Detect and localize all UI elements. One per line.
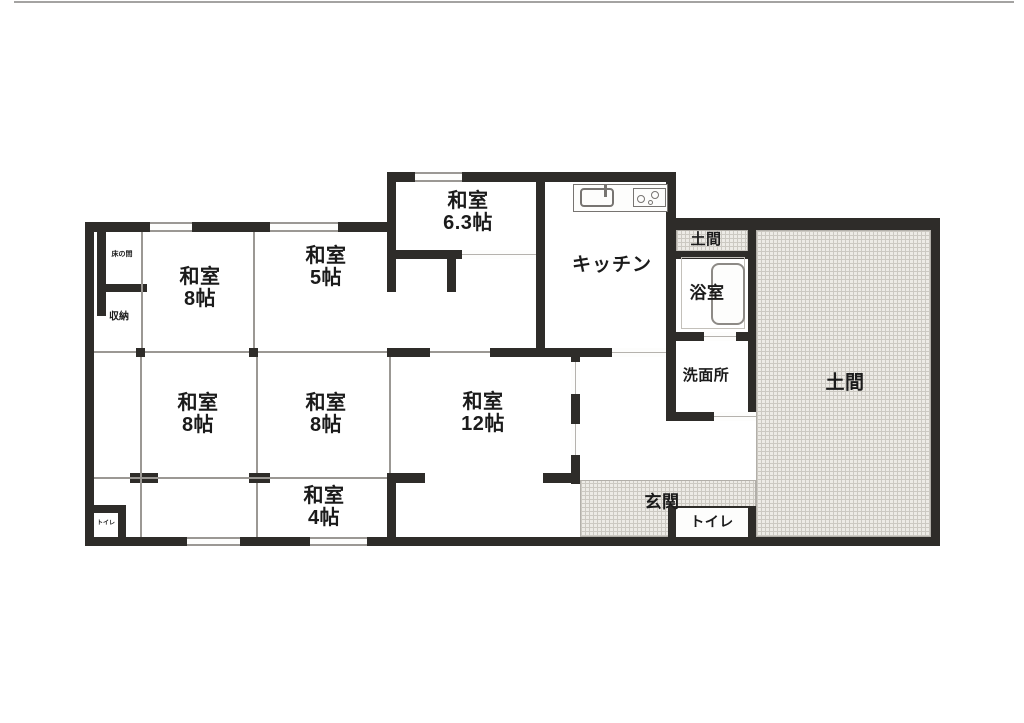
room-size: 8帖: [180, 288, 221, 310]
room-name: 和室: [448, 190, 489, 212]
room-size: 6.3帖: [443, 212, 493, 234]
stove-burner-circle: [651, 191, 659, 199]
partition-line: [389, 357, 391, 473]
partition-line: [141, 232, 143, 348]
wall-segment: [748, 230, 756, 420]
room-name: 和室: [306, 245, 347, 267]
door-marker: [612, 348, 666, 357]
wall-segment: [85, 537, 187, 546]
room-size: 5帖: [306, 267, 347, 289]
wall-segment: [85, 222, 150, 232]
room-label-doma-large: 土間: [825, 374, 864, 395]
room-label-doma-small: 土間: [690, 232, 721, 249]
faucet-icon: [604, 185, 607, 197]
wall-segment: [118, 505, 126, 546]
floor-plan: 和室 8帖 和室 5帖 和室 6.3帖 キッチン 土間 浴室 洗面所 土間 和室…: [0, 0, 1024, 723]
room-label-washitsu-mid-left: 和室 8帖: [178, 392, 219, 436]
wall-segment: [571, 394, 580, 424]
room-label-toilet-corner: トイレ: [97, 521, 115, 528]
wall-segment: [387, 250, 462, 259]
wall-segment: [666, 222, 676, 341]
partition-line: [256, 357, 258, 473]
wall-segment: [536, 172, 545, 357]
room-size: 4帖: [304, 507, 345, 529]
wall-segment: [192, 222, 270, 232]
room-label-kitchen: キッチン: [572, 256, 652, 277]
wall-segment: [85, 222, 94, 546]
room-size: 12帖: [461, 413, 505, 435]
room-label-washitsu-mid-center: 和室 8帖: [306, 392, 347, 436]
room-label-genkan: 玄関: [645, 494, 680, 513]
room-label-bathroom: 浴室: [690, 285, 725, 304]
window-marker: [187, 537, 240, 546]
window-marker: [415, 172, 462, 182]
wall-segment: [931, 222, 940, 546]
room-label-tokonoma: 床の間: [112, 251, 133, 259]
room-label-storage: 収納: [109, 312, 129, 323]
room-name: 和室: [463, 391, 504, 413]
room-name: 和室: [304, 485, 345, 507]
scan-artifact-line: [14, 1, 1014, 3]
wall-segment: [367, 537, 940, 546]
wall-segment: [240, 537, 310, 546]
wall-segment: [447, 259, 456, 292]
window-marker: [150, 222, 192, 232]
door-marker: [571, 424, 580, 455]
door-marker: [704, 332, 736, 341]
wall-segment: [490, 348, 580, 357]
wall-segment: [748, 506, 756, 537]
door-marker: [714, 412, 756, 421]
wall-segment: [97, 284, 147, 292]
window-marker: [310, 537, 367, 546]
wall-segment: [666, 218, 940, 230]
wall-segment: [387, 473, 425, 483]
room-label-washitsu-12: 和室 12帖: [461, 391, 505, 435]
stove-burner-circle: [648, 200, 653, 205]
wall-segment: [666, 341, 676, 421]
room-label-washroom: 洗面所: [683, 368, 730, 385]
room-size: 8帖: [178, 414, 219, 436]
room-name: 和室: [306, 392, 347, 414]
window-marker: [270, 222, 338, 232]
partition-line: [256, 483, 258, 537]
wall-segment: [736, 332, 756, 341]
partition-line: [94, 477, 387, 479]
door-marker: [571, 362, 580, 394]
wall-segment: [97, 232, 106, 316]
room-label-toilet-entrance: トイレ: [690, 514, 734, 529]
wall-segment: [387, 483, 396, 546]
room-name: 和室: [178, 392, 219, 414]
room-size: 8帖: [306, 414, 347, 436]
pillar-marker: [136, 348, 145, 357]
partition-line: [253, 232, 255, 348]
wall-segment: [666, 412, 714, 421]
partition-line: [140, 352, 142, 537]
partition-line: [430, 351, 490, 353]
room-name: 和室: [180, 266, 221, 288]
pillar-marker: [249, 348, 258, 357]
room-label-washitsu-5: 和室 5帖: [306, 245, 347, 289]
door-marker: [462, 250, 536, 259]
room-label-washitsu-6-3: 和室 6.3帖: [443, 190, 493, 234]
wall-segment: [666, 332, 704, 341]
room-label-washitsu-top-left: 和室 8帖: [180, 266, 221, 310]
stove-burner-circle: [637, 195, 645, 203]
wall-segment: [387, 348, 430, 357]
wall-segment: [462, 172, 676, 182]
wall-segment: [543, 473, 580, 483]
wall-segment: [387, 172, 415, 182]
kitchen-sink-icon: [580, 188, 614, 207]
room-label-washitsu-4: 和室 4帖: [304, 485, 345, 529]
